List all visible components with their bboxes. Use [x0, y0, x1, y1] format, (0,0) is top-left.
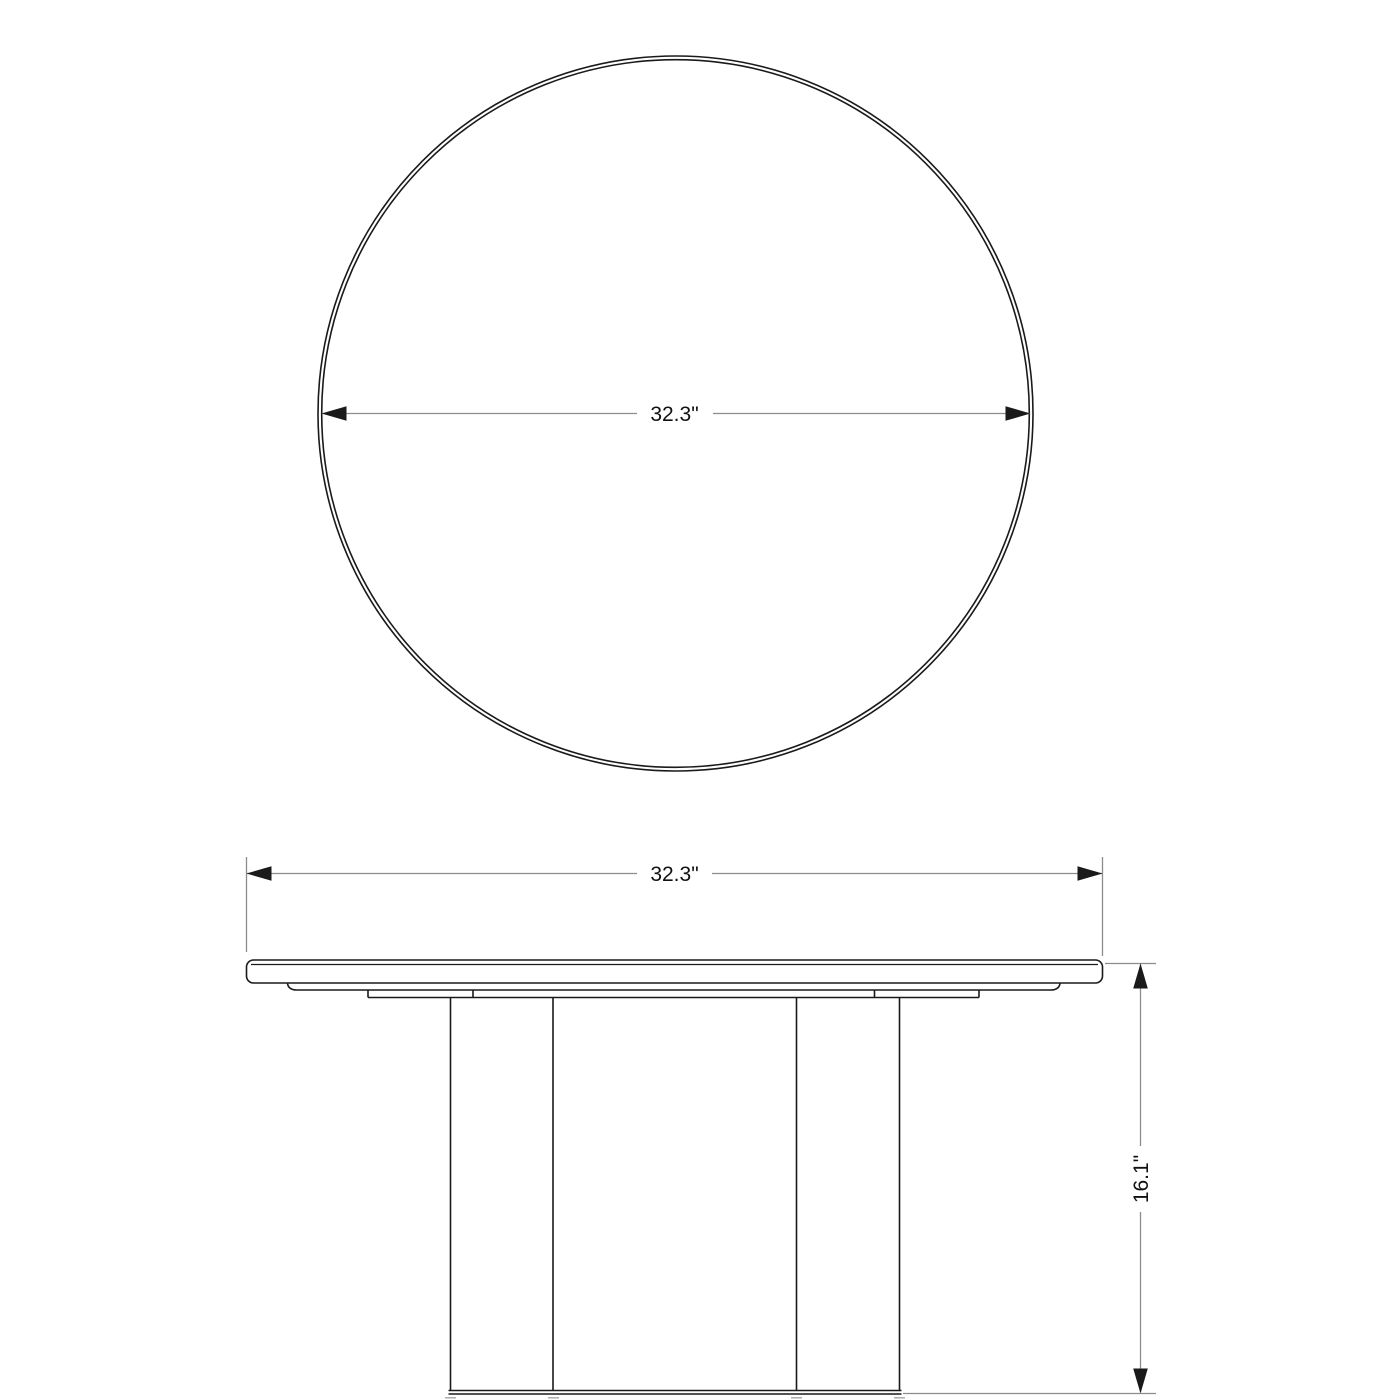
- arrow-left-icon: [322, 406, 347, 421]
- diameter-label: 32.3": [650, 403, 698, 426]
- height-dimension: 16.1": [903, 964, 1156, 1394]
- arrow-left-icon: [247, 866, 272, 881]
- table-dimension-drawing: 32.3" 32.3": [0, 0, 1400, 1400]
- tabletop-side: [247, 960, 1103, 983]
- arrow-down-icon: [1133, 1369, 1148, 1394]
- height-label: 16.1": [1130, 1155, 1153, 1203]
- tabletop-underside: [288, 984, 1061, 991]
- arrow-right-icon: [1006, 406, 1031, 421]
- arrow-right-icon: [1078, 866, 1103, 881]
- top-view: 32.3": [318, 56, 1033, 771]
- width-dimension: 32.3": [247, 857, 1103, 956]
- width-label: 32.3": [650, 863, 698, 886]
- side-view: 32.3": [247, 857, 1157, 1398]
- technical-drawing-page: 32.3" 32.3": [0, 0, 1400, 1400]
- arrow-up-icon: [1133, 964, 1148, 989]
- diameter-dimension: 32.3": [322, 403, 1031, 426]
